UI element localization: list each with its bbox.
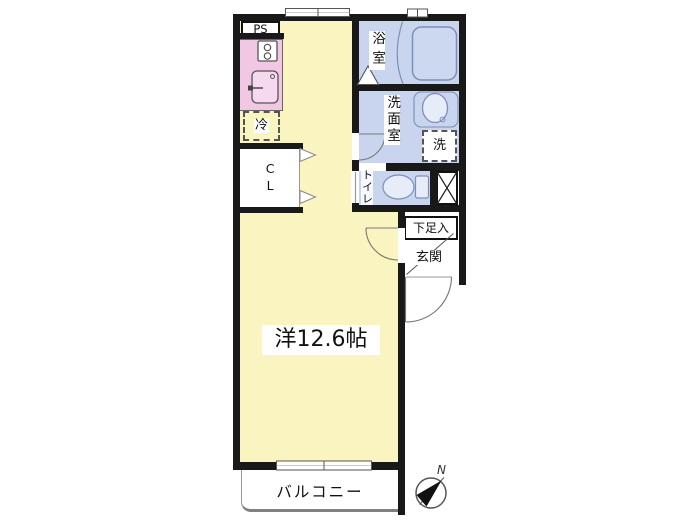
floorplan: PS 冷 CL 浴室 洗面室 洗 トイレ 下足入 玄関 洋12.6帖 バルコニー… [0,0,700,525]
closet-door-arrows-icon [300,149,316,204]
main-room-window [286,9,350,17]
washroom-door-arc-icon [359,134,385,160]
pipe-space-label: PS [241,21,280,37]
bath-partition-curve [397,22,403,85]
x-mark-icon [438,173,457,204]
front-door-arc-icon [406,277,453,322]
balcony-label: バルコニー [250,482,390,502]
balcony-window [277,461,372,470]
toilet-label: トイレ [361,169,373,208]
washroom-label: 洗面室 [384,95,400,148]
entrance-label: 玄関 [415,251,443,265]
toilet-icon [383,175,429,199]
fridge-label: 冷 [243,111,280,141]
washer-label: 洗 [422,130,457,162]
main-room-label: 洋12.6帖 [262,325,380,355]
room-door-arc-icon [366,228,398,260]
closet-label: CL [240,148,300,208]
shoe-cabinet-label: 下足入 [404,216,458,240]
bathtub-icon [413,27,457,80]
bath-label: 浴室 [369,31,385,73]
stove-icon [258,41,277,61]
sink-icon [414,92,458,127]
compass-north-label: N [437,464,446,477]
fixtures-layer [0,0,700,525]
kitchen-sink-icon [248,71,278,103]
compass-icon [416,478,446,509]
bath-window [408,9,428,17]
